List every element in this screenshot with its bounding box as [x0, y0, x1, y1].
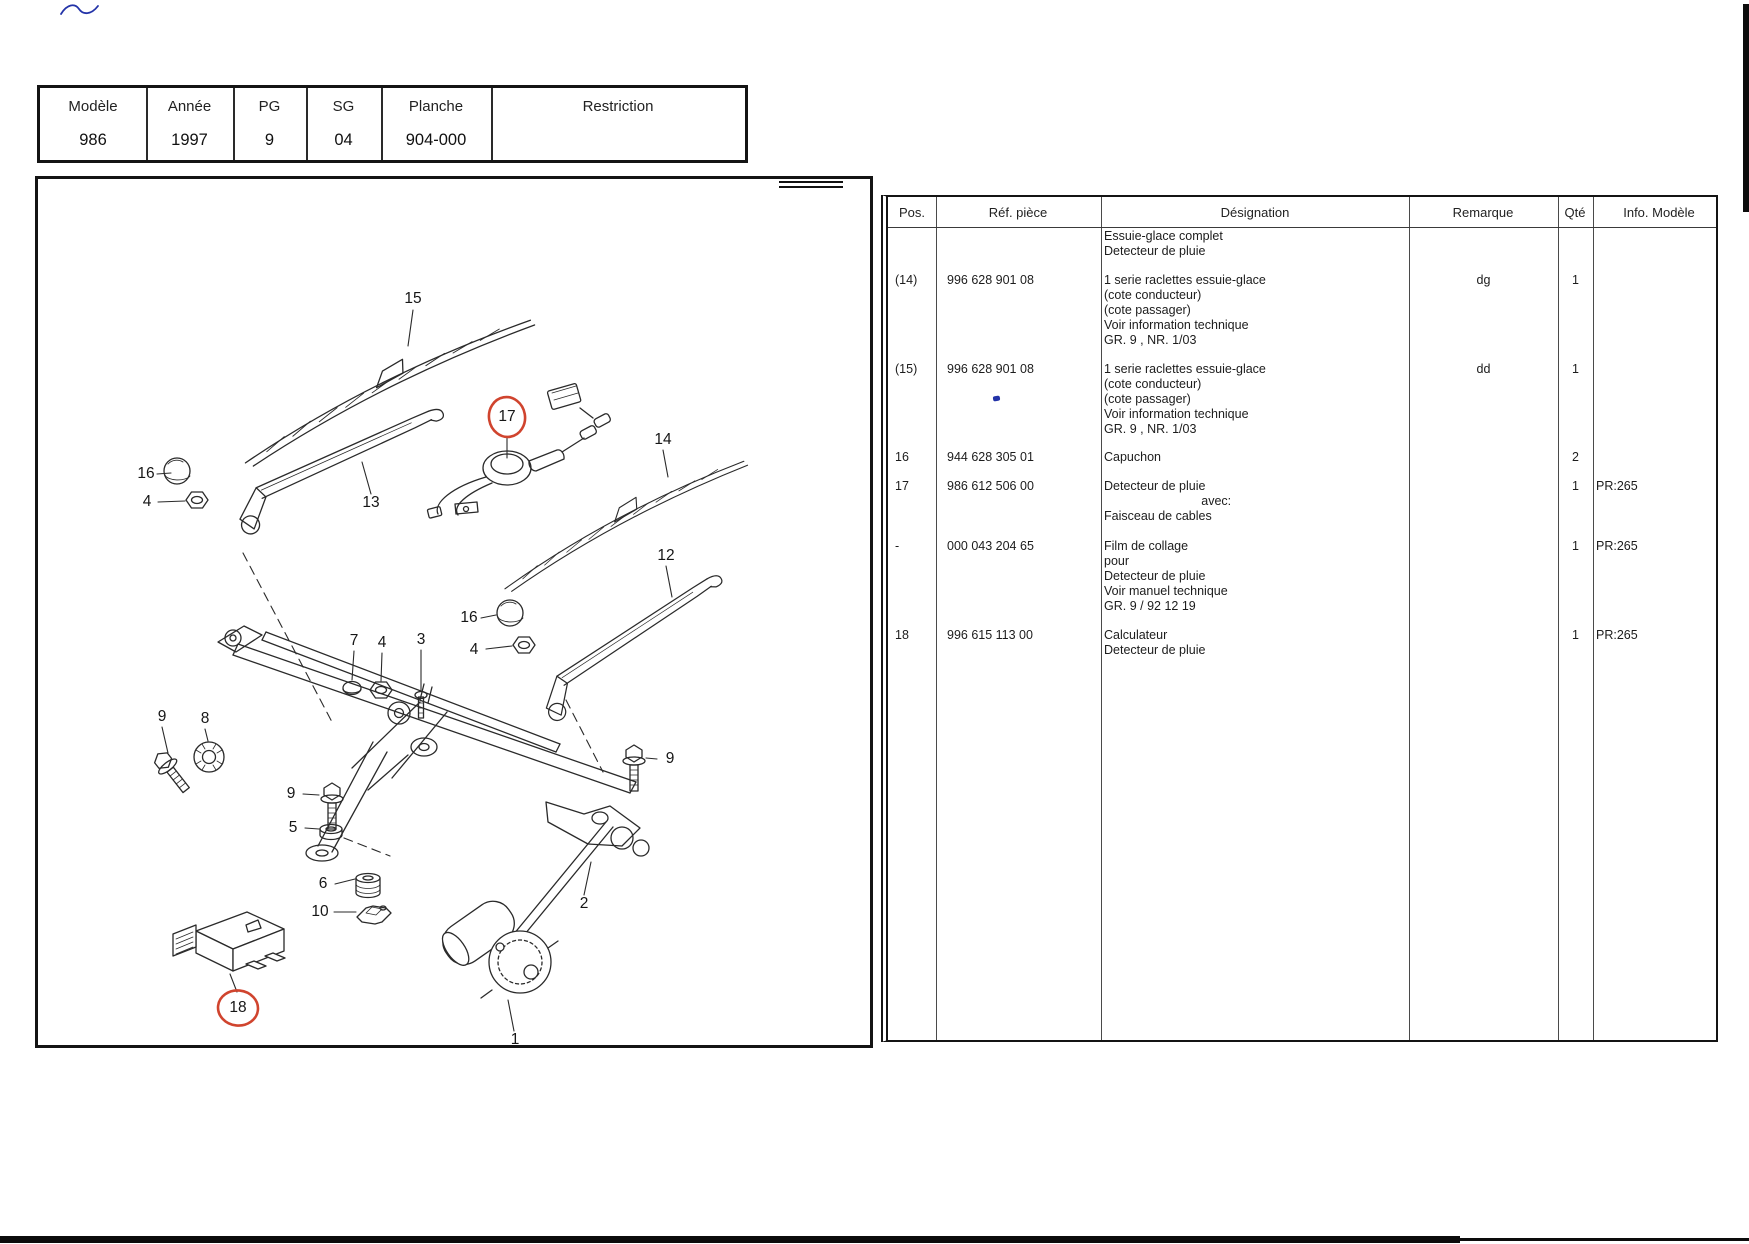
column-divider [1593, 197, 1594, 1040]
col-label-planche: Planche [381, 98, 491, 115]
part-label-17: 17 [498, 408, 515, 426]
cell-designation: 1 serie raclettes essuie-glace (cote con… [1104, 362, 1266, 437]
parts-list-table: Pos. Réf. pièce Désignation Remarque Qté… [881, 195, 1718, 1042]
col-label-modele: Modèle [40, 98, 146, 115]
cell-pos: 18 [895, 628, 909, 643]
cell-designation: 1 serie raclettes essuie-glace (cote con… [1104, 273, 1266, 348]
header-underline [888, 227, 1716, 228]
col-label-sg: SG [306, 98, 381, 115]
part-label-10: 10 [311, 903, 328, 921]
nut-4-left [186, 492, 208, 508]
cell-designation: Film de collage pour Detecteur de pluie … [1104, 539, 1228, 614]
vehicle-info-table: Modèle Année PG SG Planche Restriction 9… [37, 85, 748, 163]
cell-pos: (14) [895, 273, 917, 288]
scan-edge-bar-right [1743, 4, 1749, 212]
nut-4-mid [513, 637, 535, 653]
col-label-restriction: Restriction [491, 98, 745, 115]
cell-ref: 944 628 305 01 [947, 450, 1034, 465]
parts-diagram-panel: 15 16 4 13 17 14 12 16 4 7 4 3 9 8 9 5 6… [35, 176, 873, 1048]
part-label-2: 2 [580, 895, 589, 913]
part-label-9-left: 9 [158, 708, 167, 726]
part-label-7: 7 [350, 632, 359, 650]
cell-pos: 16 [895, 450, 909, 465]
value-pg: 9 [233, 131, 306, 150]
cell-designation: Capuchon [1104, 450, 1161, 465]
part-label-13: 13 [362, 494, 379, 512]
header-ref: Réf. pièce [989, 205, 1048, 220]
part-label-4-left: 4 [143, 493, 152, 511]
value-planche: 904-000 [381, 131, 491, 150]
cell-ref: 996 628 901 08 [947, 362, 1034, 377]
cell-pos: 17 [895, 479, 909, 494]
column-divider [1409, 197, 1410, 1040]
header-remarque: Remarque [1453, 205, 1514, 220]
part-label-16-mid: 16 [460, 609, 477, 627]
cap-16-left [164, 458, 190, 484]
cell-designation: Essuie-glace complet Detecteur de pluie [1104, 229, 1223, 259]
scan-edge-bar-bottom-thin [1400, 1238, 1749, 1241]
cell-qty: 1 [1558, 273, 1593, 288]
scan-edge-bar-bottom [0, 1236, 1460, 1243]
part-label-12: 12 [657, 547, 674, 565]
part-label-4-mid: 4 [470, 641, 479, 659]
cell-qty: 1 [1558, 628, 1593, 643]
clip-10 [357, 906, 391, 924]
header-info: Info. Modèle [1623, 205, 1695, 220]
column-divider [1558, 197, 1559, 1040]
cell-designation: Calculateur Detecteur de pluie [1104, 628, 1205, 658]
part-label-4-center: 4 [378, 634, 387, 652]
header-qty: Qté [1565, 205, 1586, 220]
pen-mark-blue [58, 1, 102, 19]
part-label-9-right: 9 [666, 750, 675, 768]
cell-ref: 000 043 204 65 [947, 539, 1034, 554]
cell-info: PR:265 [1596, 539, 1638, 554]
cell-qty: 1 [1558, 479, 1593, 494]
value-sg: 04 [306, 131, 381, 150]
cell-info: PR:265 [1596, 479, 1638, 494]
cap-16-mid [497, 600, 523, 626]
part-label-16-left: 16 [137, 465, 154, 483]
header-pos: Pos. [899, 205, 925, 220]
part-label-15: 15 [404, 290, 421, 308]
part-label-5: 5 [289, 819, 298, 837]
ecu-module [173, 912, 285, 971]
exploded-diagram [35, 176, 873, 1048]
cell-ref: 986 612 506 00 [947, 479, 1034, 494]
wiper-motor [435, 894, 558, 998]
col-label-annee: Année [146, 98, 233, 115]
part-label-18: 18 [229, 999, 246, 1017]
column-divider [936, 197, 937, 1040]
catalog-page: Modèle Année PG SG Planche Restriction 9… [0, 0, 1749, 1244]
wiper-blade-14 [493, 450, 755, 594]
cell-remarque: dd [1409, 362, 1558, 377]
wiper-arm-12 [529, 573, 744, 724]
wiper-blade-15 [232, 307, 542, 469]
part-label-14: 14 [654, 431, 671, 449]
grommet-8 [194, 742, 224, 772]
cell-pos: (15) [895, 362, 917, 377]
cell-ref: 996 628 901 08 [947, 273, 1034, 288]
cell-designation: Detecteur de pluie avec: Faisceau de cab… [1104, 479, 1231, 524]
part-label-3: 3 [417, 631, 426, 649]
wiper-arm-13 [226, 407, 459, 537]
part-label-8: 8 [201, 710, 210, 728]
column-divider [1101, 197, 1102, 1040]
value-annee: 1997 [146, 131, 233, 150]
cell-ref: 996 615 113 00 [947, 628, 1033, 643]
cell-qty: 1 [1558, 539, 1593, 554]
part-label-6: 6 [319, 875, 328, 893]
bolt-9-right [623, 745, 645, 791]
cell-info: PR:265 [1596, 628, 1638, 643]
col-label-pg: PG [233, 98, 306, 115]
cell-qty: 2 [1558, 450, 1593, 465]
bolt-9-left [149, 747, 195, 797]
part-label-1: 1 [511, 1031, 520, 1049]
value-modele: 986 [40, 131, 146, 150]
bushing-6 [356, 874, 380, 898]
cell-qty: 1 [1558, 362, 1593, 377]
header-designation: Désignation [1221, 205, 1290, 220]
cell-remarque: dg [1409, 273, 1558, 288]
part-label-9-mid: 9 [287, 785, 296, 803]
cell-pos: - [895, 539, 899, 554]
